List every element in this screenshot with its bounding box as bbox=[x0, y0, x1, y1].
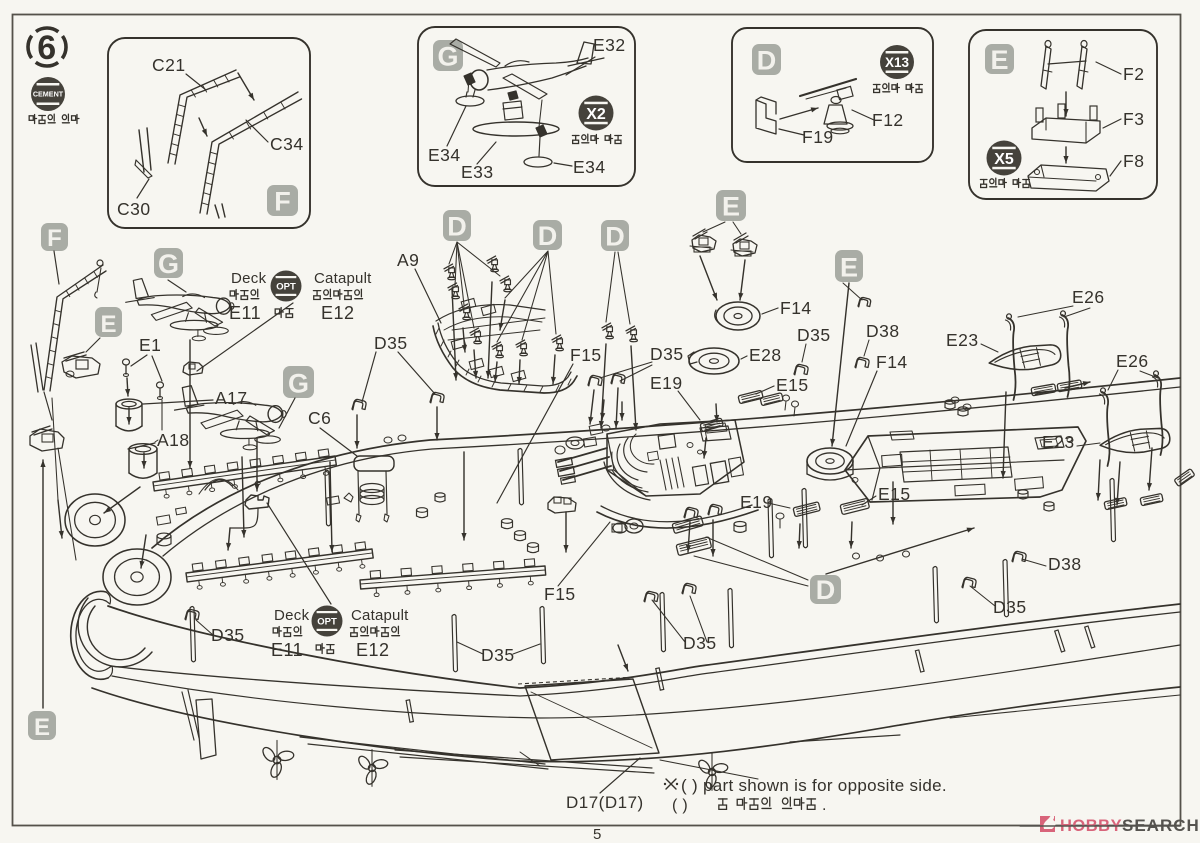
svg-text:F: F bbox=[274, 187, 291, 217]
svg-text:A9: A9 bbox=[397, 250, 419, 270]
svg-text:D: D bbox=[447, 212, 467, 242]
svg-text:E: E bbox=[990, 45, 1008, 75]
svg-text:E28: E28 bbox=[749, 345, 782, 365]
svg-text:X2: X2 bbox=[586, 106, 606, 123]
svg-text:E26: E26 bbox=[1116, 351, 1149, 371]
svg-text:D35: D35 bbox=[211, 625, 245, 645]
svg-text:CEMENT: CEMENT bbox=[33, 90, 64, 99]
svg-text:E23: E23 bbox=[1042, 432, 1075, 452]
svg-text:C34: C34 bbox=[270, 134, 304, 154]
svg-text:.: . bbox=[822, 797, 826, 814]
svg-text:E26: E26 bbox=[1072, 287, 1105, 307]
svg-text:E33: E33 bbox=[461, 162, 494, 182]
svg-text:E19: E19 bbox=[740, 492, 773, 512]
svg-text:F14: F14 bbox=[876, 352, 908, 372]
svg-text:D35: D35 bbox=[481, 645, 515, 665]
svg-text:E34: E34 bbox=[428, 145, 461, 165]
svg-text:F15: F15 bbox=[544, 584, 576, 604]
svg-text:E15: E15 bbox=[776, 375, 809, 395]
svg-text:Deck: Deck bbox=[274, 607, 310, 624]
svg-text:OPT: OPT bbox=[317, 616, 337, 627]
svg-text:F: F bbox=[47, 225, 62, 252]
svg-text:D35: D35 bbox=[683, 633, 717, 653]
svg-text:E1: E1 bbox=[139, 335, 161, 355]
svg-text:E: E bbox=[840, 253, 858, 283]
svg-text:E15: E15 bbox=[878, 484, 911, 504]
svg-text:D: D bbox=[605, 222, 625, 252]
svg-text:E32: E32 bbox=[593, 35, 626, 55]
svg-text:Catapult: Catapult bbox=[351, 607, 409, 624]
svg-text:Deck: Deck bbox=[231, 270, 267, 287]
svg-text:F8: F8 bbox=[1123, 151, 1144, 171]
svg-text:E19: E19 bbox=[650, 373, 683, 393]
svg-text:D35: D35 bbox=[650, 344, 684, 364]
svg-text:OPT: OPT bbox=[276, 281, 296, 292]
svg-text:X13: X13 bbox=[885, 55, 910, 70]
svg-text:F3: F3 bbox=[1123, 109, 1144, 129]
svg-text:G: G bbox=[158, 249, 179, 279]
svg-text:D38: D38 bbox=[1048, 554, 1082, 574]
svg-text:E11: E11 bbox=[271, 640, 303, 660]
svg-text:D: D bbox=[816, 575, 836, 605]
svg-text:( ) part shown is for oppos: ( ) part shown is for opposite side. bbox=[681, 776, 947, 795]
svg-text:E12: E12 bbox=[356, 640, 390, 660]
svg-text:F19: F19 bbox=[802, 127, 834, 147]
svg-text:D: D bbox=[757, 46, 777, 76]
svg-text:F15: F15 bbox=[570, 345, 602, 365]
svg-text:G: G bbox=[288, 369, 309, 399]
svg-text:A18: A18 bbox=[157, 430, 190, 450]
svg-text:E: E bbox=[34, 714, 50, 741]
svg-text:C30: C30 bbox=[117, 199, 151, 219]
svg-text:( ): ( ) bbox=[672, 797, 688, 814]
svg-text:E: E bbox=[100, 311, 116, 338]
svg-text:C21: C21 bbox=[152, 55, 186, 75]
svg-text:E34: E34 bbox=[573, 157, 606, 177]
svg-text:D17(D17): D17(D17) bbox=[566, 793, 644, 812]
svg-text:E12: E12 bbox=[321, 303, 355, 323]
svg-text:D: D bbox=[538, 221, 558, 251]
svg-text:6: 6 bbox=[37, 29, 56, 67]
svg-text:E: E bbox=[722, 192, 740, 222]
svg-text:Catapult: Catapult bbox=[314, 270, 372, 287]
svg-text:5: 5 bbox=[593, 826, 602, 843]
svg-text:D35: D35 bbox=[374, 333, 408, 353]
svg-text:F12: F12 bbox=[872, 110, 904, 130]
svg-text:A17: A17 bbox=[215, 388, 248, 408]
svg-text:X5: X5 bbox=[994, 151, 1014, 168]
svg-text:F14: F14 bbox=[780, 298, 812, 318]
svg-text:E23: E23 bbox=[946, 330, 979, 350]
svg-text:F2: F2 bbox=[1123, 64, 1144, 84]
svg-text:D35: D35 bbox=[993, 597, 1027, 617]
svg-text:D35: D35 bbox=[797, 325, 831, 345]
svg-text:C6: C6 bbox=[308, 408, 331, 428]
svg-text:D38: D38 bbox=[866, 321, 900, 341]
